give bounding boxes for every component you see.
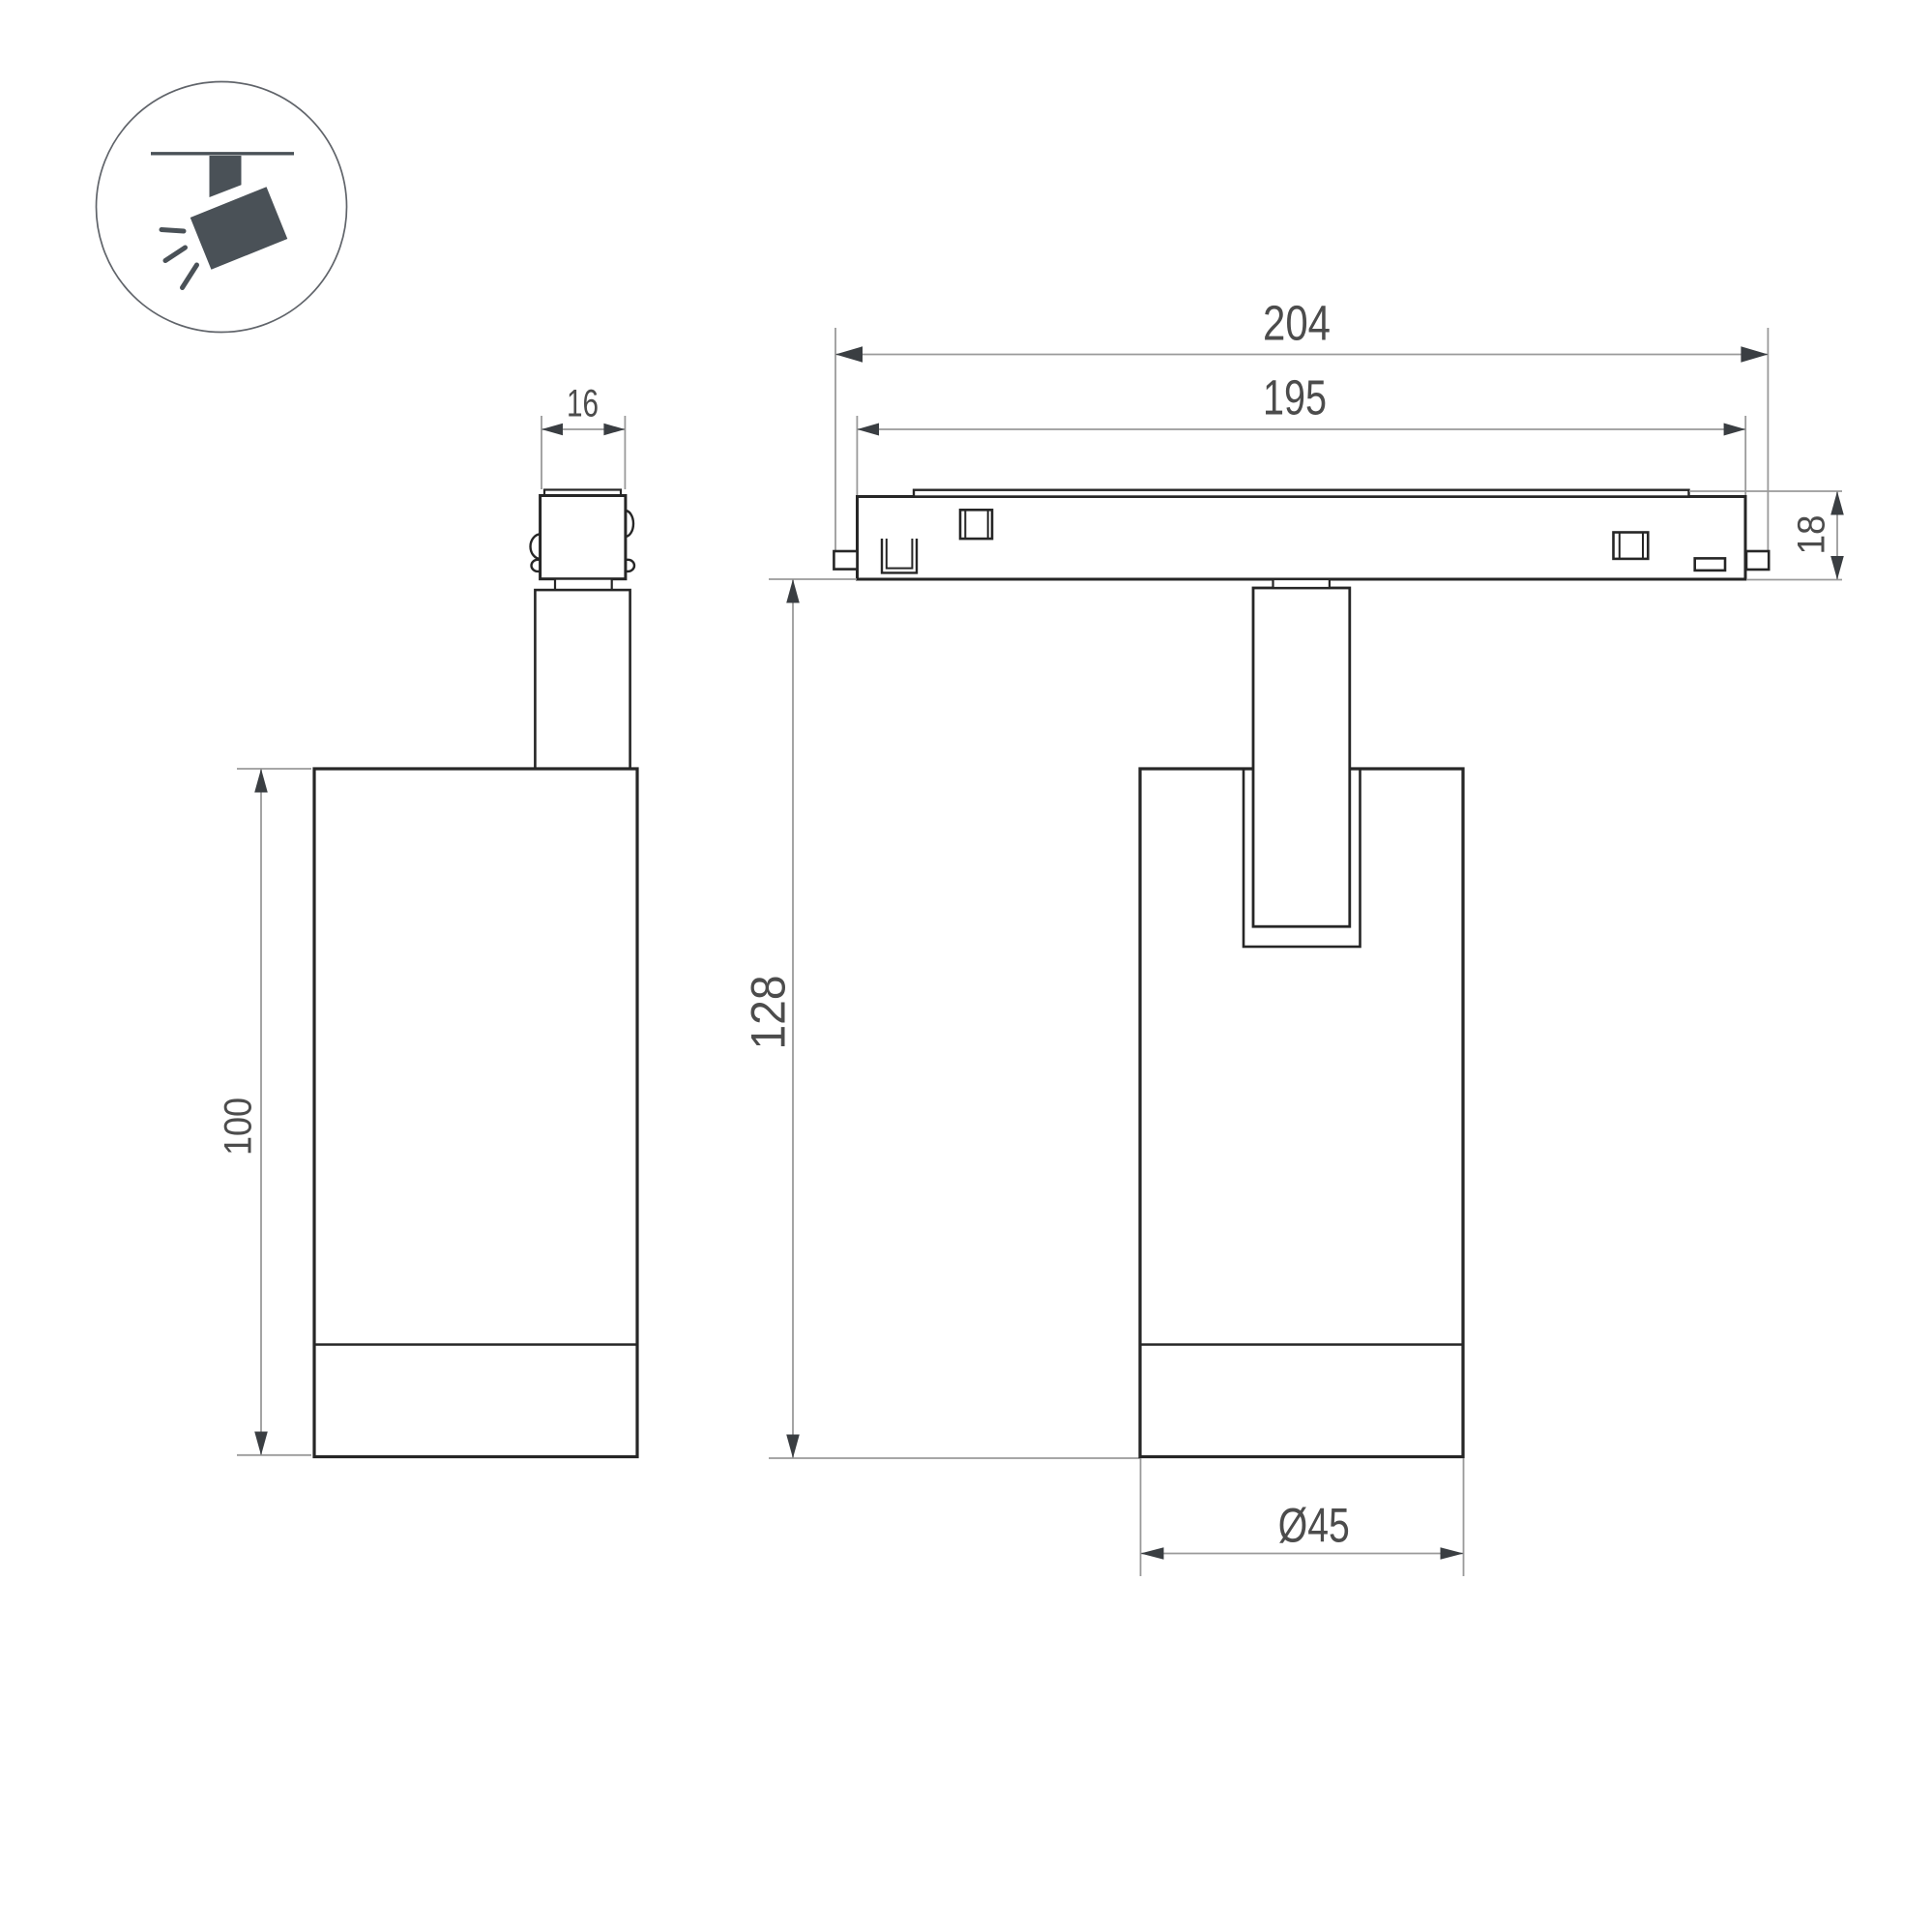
svg-text:128: 128 bbox=[742, 976, 796, 1050]
svg-text:16: 16 bbox=[567, 383, 599, 425]
svg-text:100: 100 bbox=[218, 1098, 260, 1156]
svg-text:18: 18 bbox=[1791, 515, 1833, 555]
svg-text:Ø45: Ø45 bbox=[1278, 1499, 1350, 1553]
svg-text:204: 204 bbox=[1263, 296, 1331, 351]
svg-text:195: 195 bbox=[1263, 370, 1327, 425]
